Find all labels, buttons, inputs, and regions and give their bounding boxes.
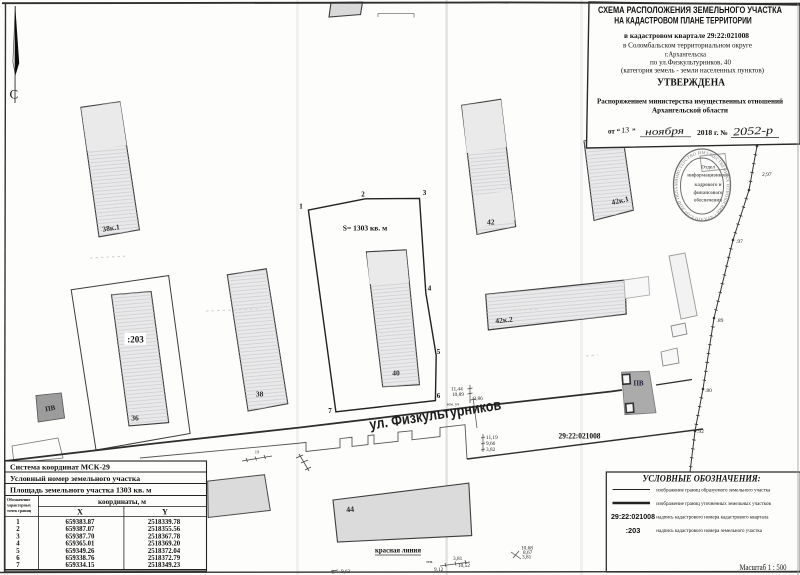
svg-text::203: :203 — [626, 526, 641, 535]
svg-text:зем. уч: зем. уч — [447, 402, 461, 407]
svg-text:С: С — [9, 87, 18, 102]
svg-text:2518355.56: 2518355.56 — [148, 526, 181, 533]
svg-text:НА КАДАСТРОВОМ ПЛАНЕ ТЕРРИТОРИ: НА КАДАСТРОВОМ ПЛАНЕ ТЕРРИТОРИИ — [614, 16, 752, 26]
svg-text:изображение границ уточненных: изображение границ уточненных земельных … — [656, 502, 771, 507]
svg-text:5: 5 — [437, 348, 441, 356]
svg-text:ноября: ноября — [645, 126, 685, 138]
svg-text:Условный номер земельного учас: Условный номер земельного участка — [10, 474, 140, 483]
svg-text:42: 42 — [487, 218, 495, 227]
svg-text:(категория земель - земли насе: (категория земель - земли населенных пун… — [621, 68, 764, 75]
svg-text:2: 2 — [361, 191, 365, 199]
svg-text:Отдел: Отдел — [701, 166, 715, 171]
svg-text:кадрового и: кадрового и — [695, 183, 722, 188]
svg-text:2518369.20: 2518369.20 — [148, 541, 181, 548]
svg-text:2518339.78: 2518339.78 — [148, 519, 181, 526]
svg-text:7: 7 — [16, 562, 20, 569]
svg-text:надпись кадастрового номера зе: надпись кадастрового номера земельного у… — [656, 529, 762, 534]
svg-text:УСЛОВНЫЕ ОБОЗНАЧЕНИЯ:: УСЛОВНЫЕ ОБОЗНАЧЕНИЯ: — [643, 474, 761, 484]
svg-text:659387.07: 659387.07 — [66, 526, 95, 533]
svg-text:в Соломбальском территориальн: в Соломбальском территориальном округе — [623, 43, 752, 50]
svg-text:2518372.79: 2518372.79 — [148, 555, 181, 562]
svg-text:40: 40 — [392, 369, 400, 378]
svg-text:2518349.23: 2518349.23 — [148, 562, 181, 569]
svg-text:44: 44 — [346, 505, 355, 515]
svg-text:4: 4 — [428, 285, 432, 293]
svg-text:точек границ: точек границ — [7, 508, 32, 513]
svg-text:5: 5 — [16, 548, 20, 555]
svg-text:Система координат МСК-29: Система координат МСК-29 — [10, 463, 110, 472]
svg-text:красная линия: красная линия — [375, 548, 421, 555]
svg-text:Обозначение: Обозначение — [7, 497, 30, 502]
svg-text:.89: .89 — [717, 318, 724, 324]
svg-text:надпись кадастрового номера ка: надпись кадастрового номера кадастрового… — [656, 515, 769, 520]
svg-text:по ул.Физкультурников, 40: по ул.Физкультурников, 40 — [650, 60, 732, 67]
svg-text:2518367.78: 2518367.78 — [148, 533, 181, 540]
svg-text:2018 г. №: 2018 г. № — [697, 129, 728, 137]
svg-text:3,81: 3,81 — [522, 555, 532, 561]
svg-text:659387.70: 659387.70 — [66, 533, 95, 540]
svg-text:2052-р: 2052-р — [733, 124, 774, 138]
svg-text:Площадь земельного участка 13: Площадь земельного участка 1303 кв. м — [10, 486, 152, 495]
svg-text:г.Архангельска: г.Архангельска — [665, 52, 706, 59]
svg-text:2,97: 2,97 — [762, 172, 772, 178]
svg-text:характерных: характерных — [7, 503, 31, 508]
svg-text:36: 36 — [131, 414, 139, 423]
svg-text:29:22:021008: 29:22:021008 — [611, 512, 655, 521]
svg-text::203: :203 — [127, 334, 144, 344]
svg-text:659365.01: 659365.01 — [66, 541, 95, 548]
svg-text:S= 1303 кв. м: S= 1303 кв. м — [343, 224, 387, 233]
svg-text:Распоряжением министерства иму: Распоряжением министерства имущественных… — [597, 97, 783, 105]
svg-text:13: 13 — [621, 125, 630, 135]
svg-text:29:22:021008: 29:22:021008 — [559, 432, 601, 441]
svg-text:1: 1 — [16, 519, 20, 526]
svg-text:Y: Y — [162, 508, 168, 517]
svg-text:659349.26: 659349.26 — [66, 548, 95, 555]
svg-text:X: X — [77, 508, 83, 517]
svg-text:изображение границ образуемого: изображение границ образуемого земельног… — [656, 489, 771, 494]
svg-text:”: ” — [632, 128, 636, 136]
svg-text:3,81: 3,81 — [453, 556, 463, 562]
svg-text:координаты, м: координаты, м — [98, 498, 146, 506]
svg-text:3: 3 — [423, 189, 427, 197]
svg-text:информационного: информационного — [687, 174, 729, 179]
svg-text:Масштаб 1 : 500: Масштаб 1 : 500 — [740, 563, 787, 572]
svg-text:659383.87: 659383.87 — [66, 519, 95, 526]
svg-text:7: 7 — [328, 407, 332, 415]
svg-text:3,82: 3,82 — [486, 447, 496, 453]
svg-text:659338.76: 659338.76 — [66, 555, 95, 562]
svg-text:2: 2 — [16, 526, 20, 533]
svg-text:1: 1 — [299, 203, 303, 211]
svg-text:ПВ: ПВ — [633, 380, 643, 388]
svg-text:зем.: зем. — [426, 559, 433, 564]
svg-text:.97: .97 — [736, 239, 743, 245]
svg-text:38: 38 — [256, 390, 264, 399]
svg-text:3: 3 — [16, 533, 20, 540]
svg-text:.92: .92 — [697, 429, 704, 435]
svg-text:2518372.04: 2518372.04 — [148, 548, 181, 555]
svg-text:СХЕМА РАСПОЛОЖЕНИЯ ЗЕМЕЛЬНОГО: СХЕМА РАСПОЛОЖЕНИЯ ЗЕМЕЛЬНОГО УЧАСТКА — [598, 5, 782, 15]
svg-text:6: 6 — [16, 555, 20, 562]
svg-text:19: 19 — [255, 450, 260, 455]
svg-text:Архангельской области: Архангельской области — [652, 107, 728, 115]
svg-text:от “: от “ — [608, 128, 621, 136]
svg-text:659334.15: 659334.15 — [66, 562, 95, 569]
svg-text:УТВЕРЖДЕНА: УТВЕРЖДЕНА — [657, 77, 725, 89]
svg-text:4: 4 — [16, 541, 20, 548]
svg-text:10,89: 10,89 — [452, 392, 464, 398]
svg-text:обеспечения: обеспечения — [694, 199, 722, 204]
svg-text:42к.2: 42к.2 — [495, 315, 514, 326]
svg-text:10,52: 10,52 — [458, 563, 470, 569]
svg-text:.80: .80 — [705, 388, 712, 394]
svg-text:финансового: финансового — [693, 191, 723, 196]
svg-text:6: 6 — [437, 392, 441, 400]
svg-text:в кадастровом квартале 29:22:0: в кадастровом квартале 29:22:021008 — [624, 31, 749, 40]
